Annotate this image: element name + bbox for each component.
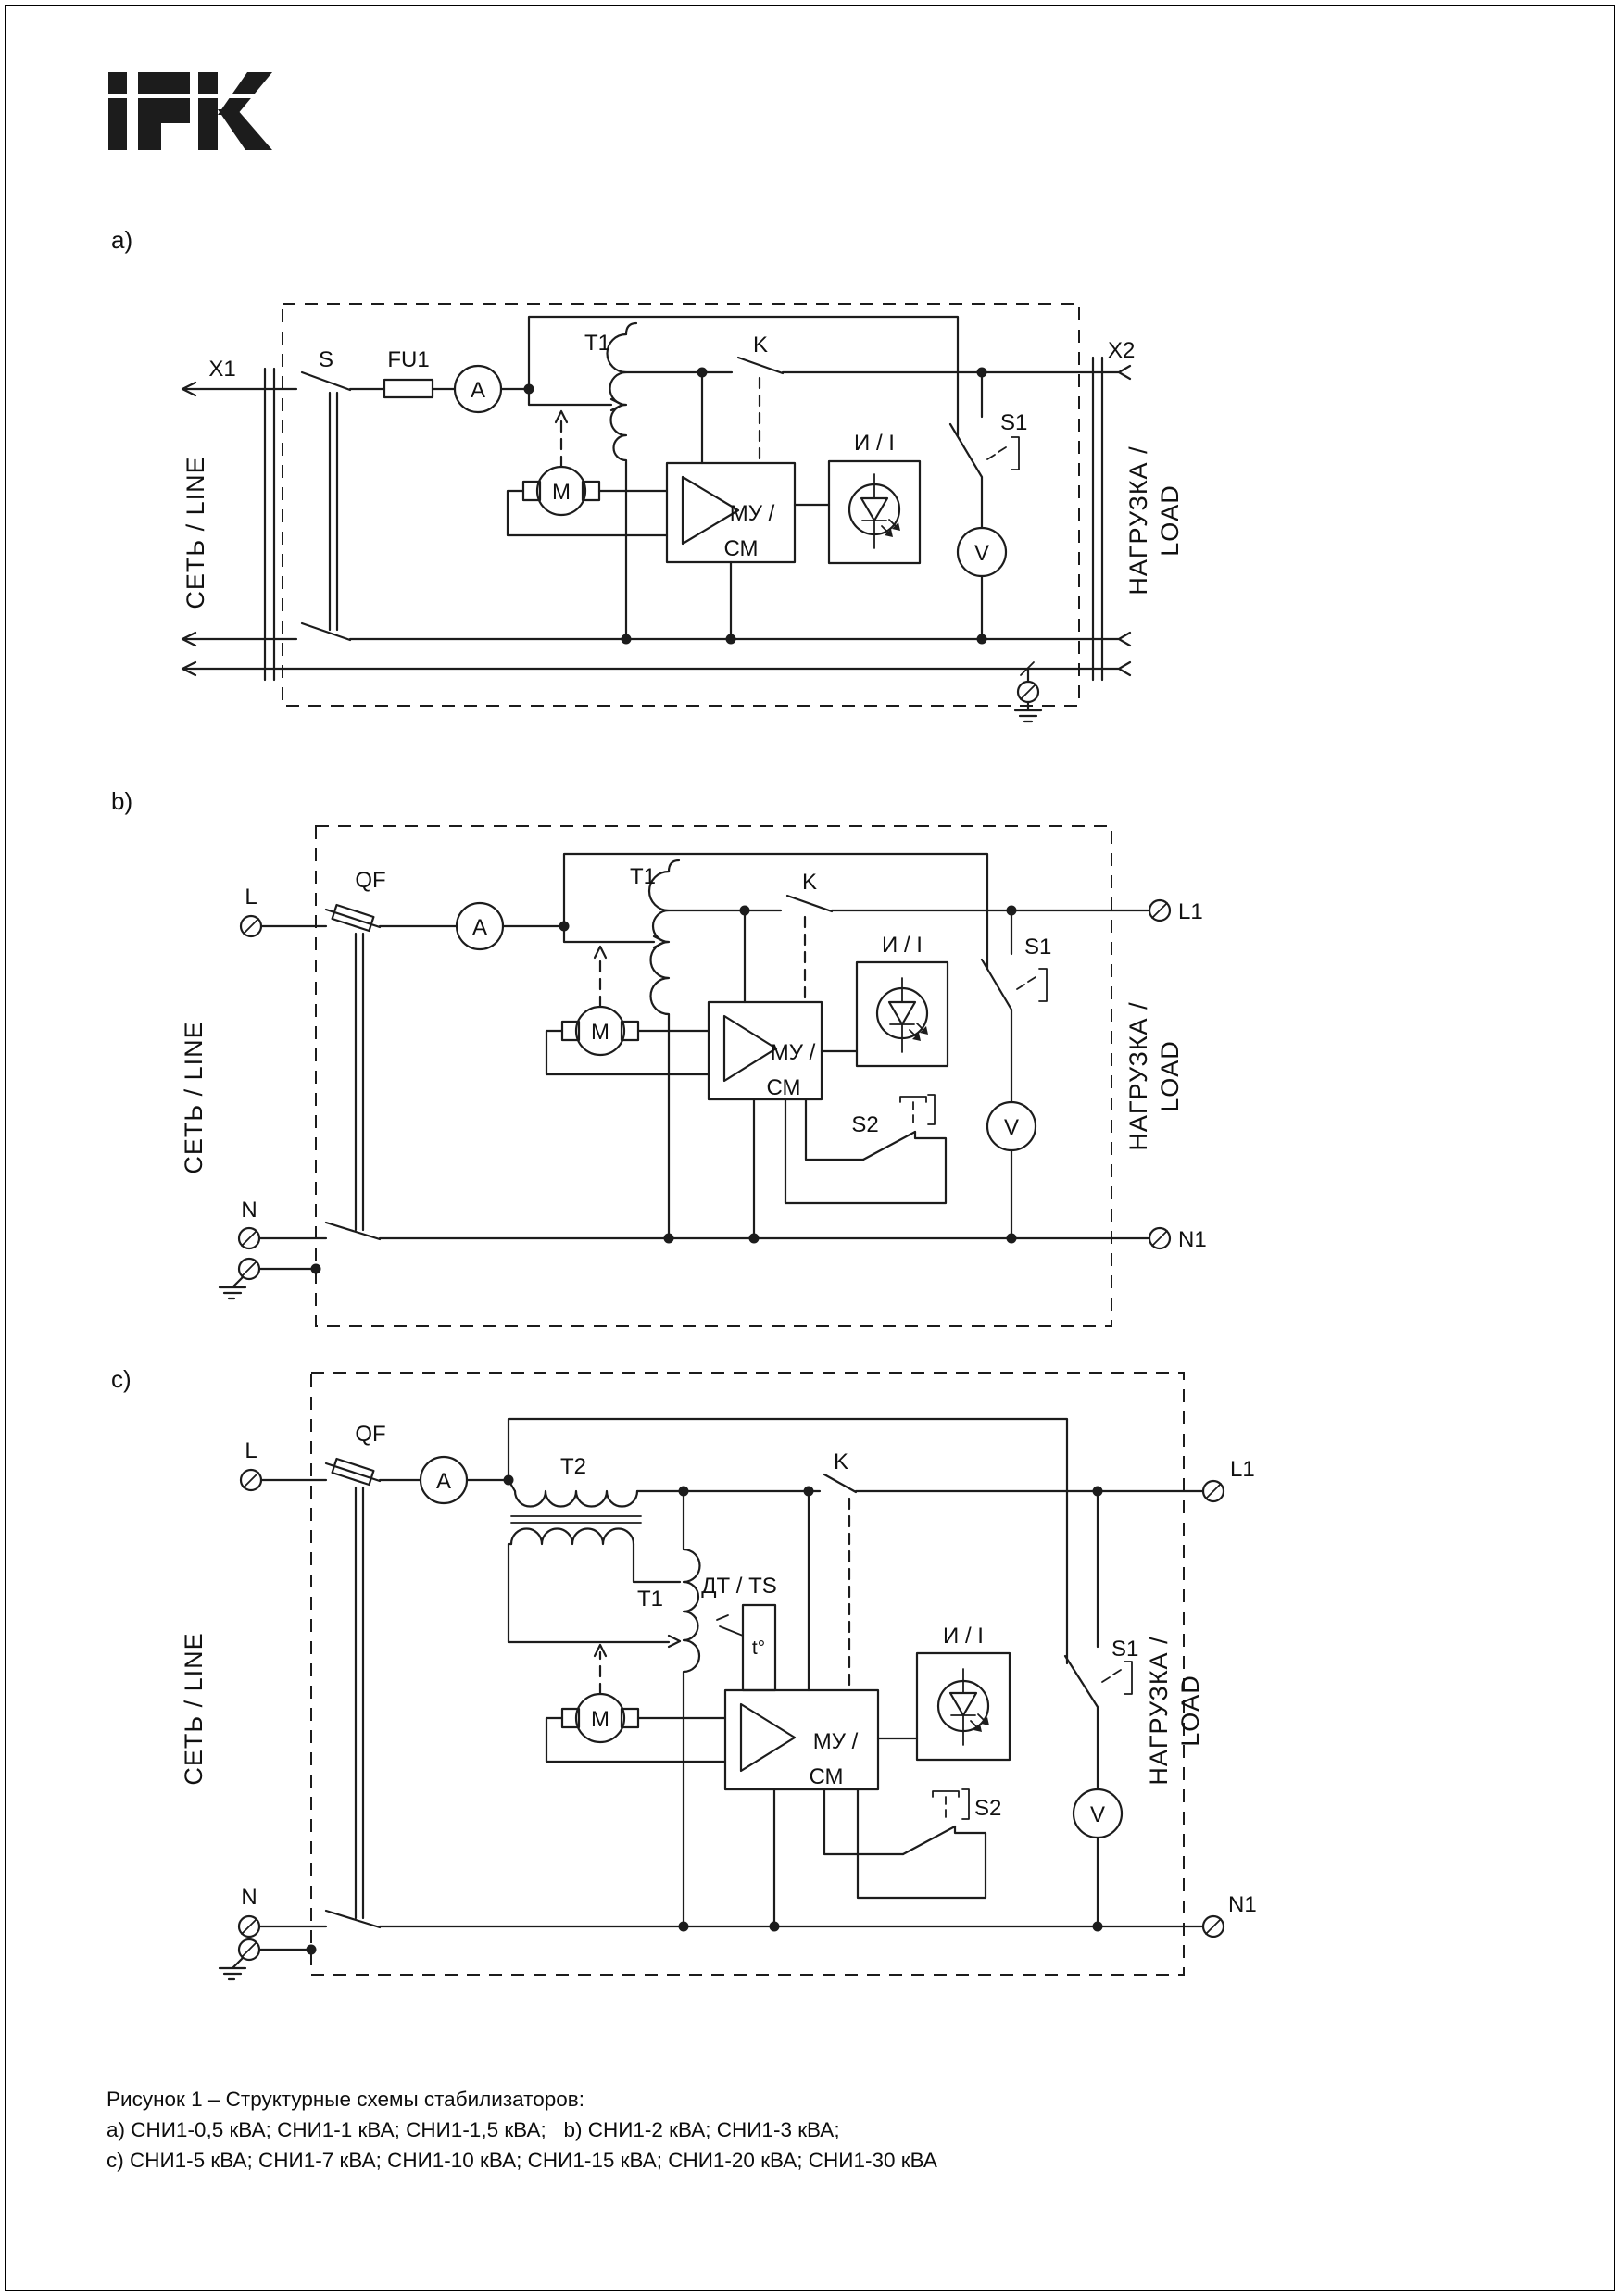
caption-title: Рисунок 1 – Структурные схемы стабилизат… xyxy=(107,2084,1450,2114)
caption-models-ab: a) СНИ1-0,5 кВА; СНИ1-1 кВА; СНИ1-1,5 кВ… xyxy=(107,2114,1450,2145)
switch-s2-label: S2 xyxy=(851,1112,878,1137)
switch-s2-icon: S2 xyxy=(785,1095,946,1203)
line-side-label: СЕТЬ / LINE xyxy=(180,1021,207,1173)
control-unit-label-1: МУ / xyxy=(730,501,775,526)
temp-sensor-label: ДТ / TS xyxy=(701,1574,777,1599)
iek-logo-icon xyxy=(108,72,271,150)
control-unit-icon: МУ / СМ xyxy=(725,1690,878,1789)
diagram-b-schematic: b) СЕТЬ / LINE НАГРУЗКА / LOAD L QF A xyxy=(88,783,1218,1338)
selector-s1-label: S1 xyxy=(1000,410,1027,435)
terminal-n-icon: N xyxy=(239,1198,259,1248)
motor-label: M xyxy=(591,1020,609,1045)
caption-models-c: c) СНИ1-5 кВА; СНИ1-7 кВА; СНИ1-10 кВА; … xyxy=(107,2145,1450,2176)
terminal-l-label: L xyxy=(245,1438,257,1463)
control-unit-label-2: СМ xyxy=(809,1764,843,1789)
load-side-label-1: НАГРУЗКА / xyxy=(1124,1001,1152,1150)
transformer-t1-label: T1 xyxy=(637,1587,663,1612)
contactor-k-icon: K xyxy=(787,870,832,1002)
motor-label: M xyxy=(552,480,571,505)
voltmeter-icon: V xyxy=(1074,1789,1122,1838)
transformer-t2-label: T2 xyxy=(560,1454,586,1479)
switch-s-icon: S xyxy=(302,347,350,640)
switch-s-label: S xyxy=(319,347,333,372)
diagram-a-label: a) xyxy=(111,226,132,254)
figure-caption: Рисунок 1 – Структурные схемы стабилизат… xyxy=(107,2084,1450,2176)
selector-s1-icon: S1 xyxy=(950,372,1027,528)
terminal-n-label: N xyxy=(241,1885,257,1910)
breaker-qf-label: QF xyxy=(355,1422,385,1447)
diagram-a-schematic: a) СЕТЬ / LINE НАГРУЗКА / LOAD X1 S FU1 … xyxy=(88,222,1186,741)
indicator-label: И / I xyxy=(882,933,923,958)
enclosure-outline xyxy=(311,1373,1184,1975)
load-side-label-2: LOAD xyxy=(1156,1040,1184,1112)
indicator-icon: И / I xyxy=(829,431,920,563)
load-side-label-1: НАГРУЗКА / xyxy=(1124,445,1152,595)
earth-terminal-icon xyxy=(220,1259,321,1299)
terminal-n1-label: N1 xyxy=(1228,1892,1257,1917)
earth-terminal-icon xyxy=(1015,662,1041,721)
ammeter-label: A xyxy=(472,915,487,940)
motor-icon: M xyxy=(546,947,709,1074)
selector-s1-label: S1 xyxy=(1111,1637,1138,1662)
control-unit-label-2: СМ xyxy=(766,1075,800,1100)
voltmeter-label: V xyxy=(1090,1802,1105,1827)
selector-s1-label: S1 xyxy=(1024,935,1051,960)
control-unit-label-1: МУ / xyxy=(813,1729,859,1754)
terminal-l-icon: L xyxy=(241,1438,261,1490)
control-unit-label-2: СМ xyxy=(723,536,758,561)
ammeter-label: A xyxy=(436,1469,451,1494)
voltmeter-label: V xyxy=(1004,1115,1019,1140)
terminal-n-label: N xyxy=(241,1198,257,1223)
transformer-t1-icon: T1 xyxy=(637,1491,700,1926)
load-side-label-1: НАГРУЗКА / xyxy=(1145,1636,1173,1785)
voltmeter-icon: V xyxy=(958,528,1006,576)
terminal-l-icon: L xyxy=(241,885,261,936)
transformer-t1-label: T1 xyxy=(630,864,656,889)
load-side-label-2: LOAD xyxy=(1176,1675,1204,1747)
switch-s2-icon: S2 xyxy=(824,1789,1001,1898)
ammeter-icon: A xyxy=(457,903,503,949)
voltmeter-icon: V xyxy=(987,1102,1036,1150)
contactor-k-label: K xyxy=(753,332,768,358)
diagram-c-schematic: c) СЕТЬ / LINE НАГРУЗКА / LOAD L QF A xyxy=(88,1352,1292,2019)
document-page: IEK a) СЕТЬ / LINE НАГРУЗКА / LOAD X1 S xyxy=(0,0,1620,2296)
contactor-k-icon: K xyxy=(738,332,783,463)
terminal-n-icon: N xyxy=(239,1885,259,1937)
terminal-l1-label: L1 xyxy=(1178,899,1203,924)
temp-mark-label: t° xyxy=(752,1637,765,1659)
terminal-n1-icon: N1 xyxy=(1149,1227,1207,1252)
breaker-qf-icon: QF xyxy=(326,1422,386,1927)
control-unit-icon: МУ / СМ xyxy=(667,463,795,562)
ammeter-icon: A xyxy=(421,1457,467,1503)
contactor-k-icon: K xyxy=(824,1449,856,1690)
line-side-label: СЕТЬ / LINE xyxy=(182,456,209,609)
transformer-t1-label: T1 xyxy=(584,331,610,356)
terminal-l-label: L xyxy=(245,885,257,910)
terminal-l1-label: L1 xyxy=(1230,1457,1255,1482)
enclosure-outline xyxy=(316,826,1111,1326)
indicator-icon: И / I xyxy=(917,1624,1010,1760)
contactor-k-label: K xyxy=(834,1449,848,1474)
connector-x1-icon: X1 xyxy=(208,357,274,680)
ammeter-icon: A xyxy=(455,366,501,412)
selector-s1-icon: S1 xyxy=(1065,1491,1138,1789)
motor-label: M xyxy=(591,1707,609,1732)
indicator-label: И / I xyxy=(943,1624,984,1649)
earth-terminal-icon xyxy=(220,1939,317,1979)
x1-label: X1 xyxy=(208,357,235,382)
selector-s1-icon: S1 xyxy=(982,910,1051,1102)
terminal-n1-icon: N1 xyxy=(1203,1892,1257,1937)
voltmeter-label: V xyxy=(974,541,989,566)
diagram-b-label: b) xyxy=(111,787,132,815)
x2-label: X2 xyxy=(1108,338,1135,363)
fuse-fu1-icon: FU1 xyxy=(384,347,433,397)
terminal-n1-label: N1 xyxy=(1178,1227,1207,1252)
indicator-icon: И / I xyxy=(857,933,948,1066)
motor-icon: M xyxy=(508,411,667,535)
terminal-l1-icon: L1 xyxy=(1149,899,1203,924)
line-side-label: СЕТЬ / LINE xyxy=(180,1632,207,1785)
diagram-c-label: c) xyxy=(111,1365,132,1393)
breaker-qf-label: QF xyxy=(355,868,385,893)
control-unit-icon: МУ / СМ xyxy=(709,1002,822,1100)
breaker-qf-icon: QF xyxy=(326,868,386,1239)
control-unit-label-1: МУ / xyxy=(771,1040,816,1065)
switch-s2-label: S2 xyxy=(974,1796,1001,1821)
terminal-l1-icon: L1 xyxy=(1203,1457,1255,1501)
temp-sensor-icon: ДТ / TS t° xyxy=(701,1574,777,1690)
load-side-label-2: LOAD xyxy=(1156,484,1184,557)
transformer-t1-icon: T1 xyxy=(630,860,679,1238)
transformer-t2-icon: T2 xyxy=(509,1454,680,1642)
indicator-label: И / I xyxy=(854,431,895,456)
ammeter-label: A xyxy=(471,378,485,403)
fuse-fu1-label: FU1 xyxy=(387,347,429,372)
contactor-k-label: K xyxy=(802,870,817,895)
